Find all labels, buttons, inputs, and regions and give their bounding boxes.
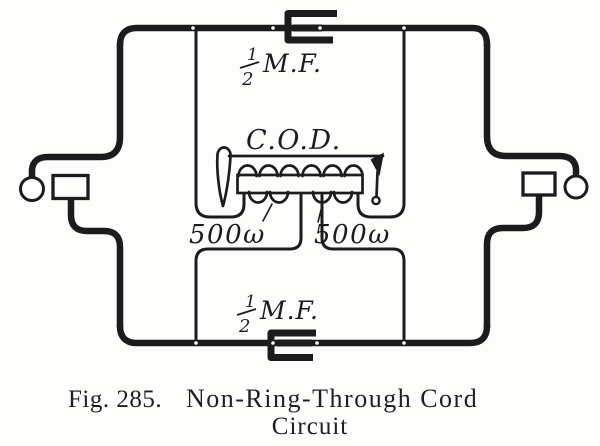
coil-right-branch-wire bbox=[358, 30, 404, 217]
right-ring-lead-wire bbox=[487, 44, 576, 175]
right-tip-lead-wire bbox=[487, 195, 539, 327]
figure-caption: Fig. 285. Non-Ring-Through Cord Circuit bbox=[68, 384, 478, 440]
coil-flag-drop-wire bbox=[377, 172, 378, 197]
left-tip-terminal bbox=[53, 176, 88, 199]
figure-title-line1: Non-Ring-Through Cord bbox=[186, 384, 478, 413]
capacitor-bottom-unit: M.F. bbox=[259, 296, 319, 325]
capacitor-bottom-symbol bbox=[271, 333, 316, 358]
capacitor-top-fraction-denominator: 2 bbox=[241, 69, 253, 90]
left-winding-leader-line bbox=[263, 204, 272, 221]
left-ring-lead-wire bbox=[32, 44, 120, 176]
coil-label: C.O.D. bbox=[246, 125, 342, 156]
capacitor-bottom-fraction-denominator: 2 bbox=[238, 316, 250, 337]
coil-core bbox=[238, 175, 363, 193]
left-ring-terminal bbox=[21, 178, 44, 201]
left-winding-label: 500ω bbox=[189, 220, 266, 250]
figure-number: Fig. 285. bbox=[68, 386, 162, 413]
left-tip-lead-wire bbox=[71, 199, 120, 327]
figure-title-line2: Circuit bbox=[272, 413, 348, 440]
figure-page: 1 2 M.F. 1 2 M.F. C.O.D. 500ω 500ω Fig. … bbox=[0, 0, 600, 446]
circuit-diagram: 1 2 M.F. 1 2 M.F. C.O.D. 500ω 500ω Fig. … bbox=[0, 0, 600, 446]
coil-flag-eyelet bbox=[372, 197, 379, 204]
capacitor-top-unit: M.F. bbox=[262, 49, 322, 78]
right-tip-terminal bbox=[523, 173, 555, 195]
capacitor-top-label: 1 2 M.F. bbox=[240, 45, 322, 90]
right-ring-terminal bbox=[565, 176, 587, 198]
right-winding-label: 500ω bbox=[314, 220, 391, 250]
